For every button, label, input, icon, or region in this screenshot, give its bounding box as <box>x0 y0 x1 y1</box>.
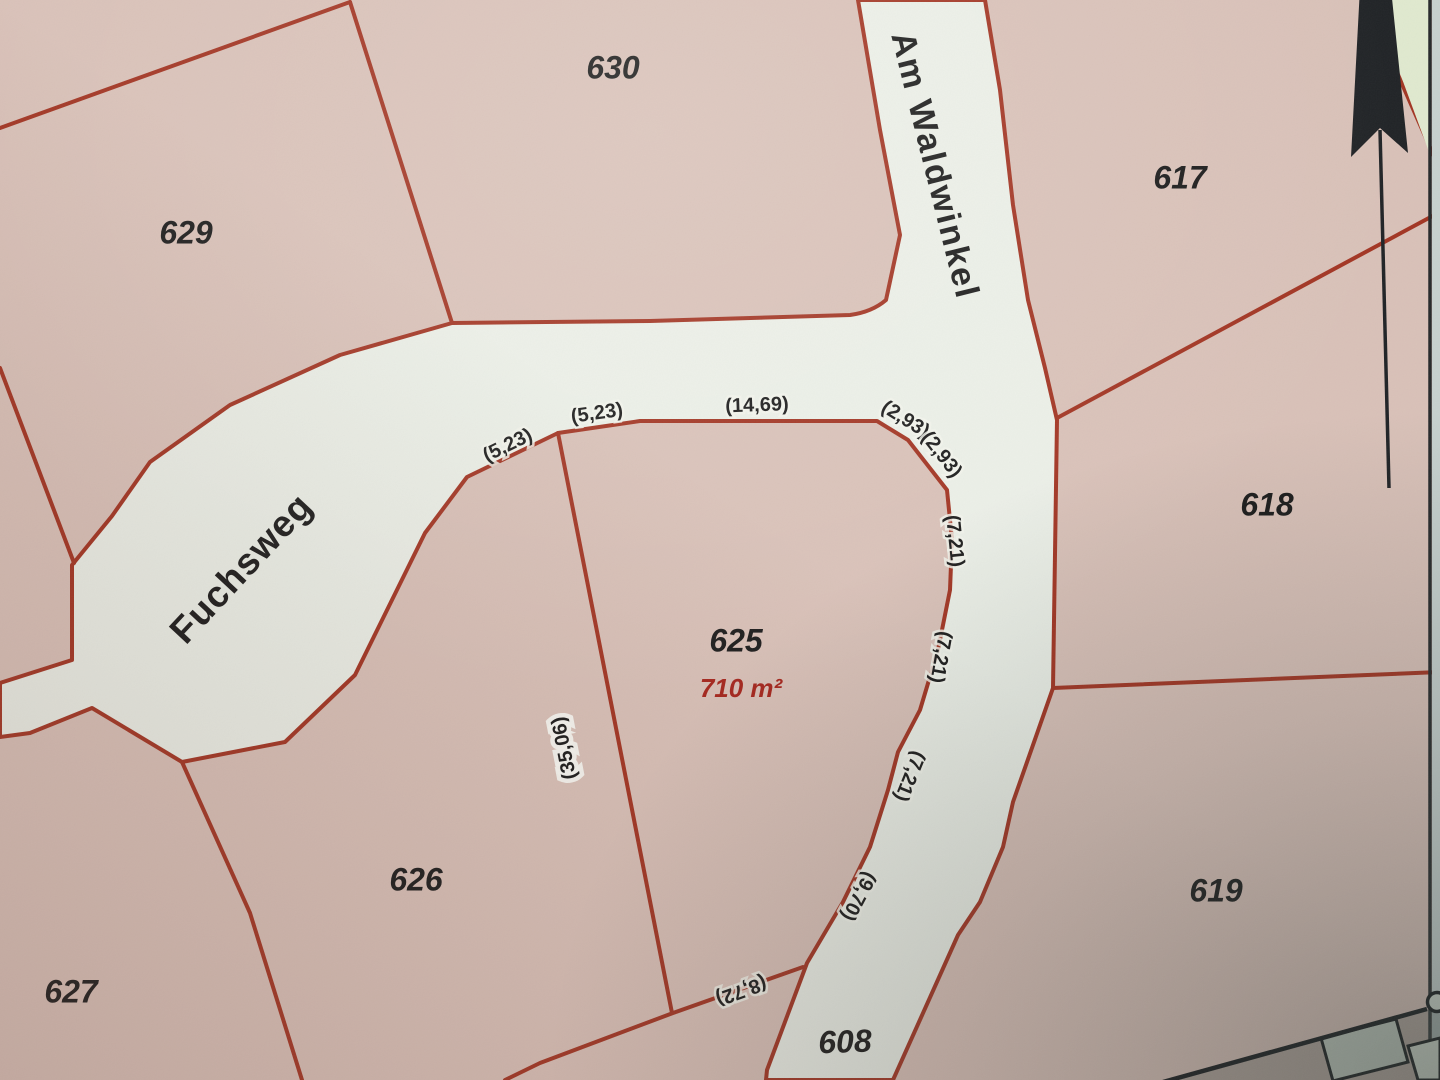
parcel-label-627: 627 <box>44 973 100 1009</box>
map-canvas: Am WaldwinkelFuchsweg6296306176186196256… <box>0 0 1440 1080</box>
parcel-label-625: 625 <box>709 622 764 658</box>
parcel-label-629: 629 <box>159 214 213 250</box>
measurement-14-69: (14,69) <box>725 393 789 417</box>
parcel-label-608: 608 <box>818 1023 873 1061</box>
parcel-label-619: 619 <box>1189 872 1243 908</box>
parcel-label-626: 626 <box>389 861 443 897</box>
parcel-label-617: 617 <box>1153 159 1209 195</box>
area-label-625: 710 m² <box>700 673 784 703</box>
map-margin-strip <box>1432 0 1440 1080</box>
cadastral-map-photo: Am WaldwinkelFuchsweg6296306176186196256… <box>0 0 1440 1080</box>
survey-point-circle <box>1428 993 1440 1012</box>
parcel-label-618: 618 <box>1240 486 1294 522</box>
parcel-label-630: 630 <box>586 49 640 85</box>
